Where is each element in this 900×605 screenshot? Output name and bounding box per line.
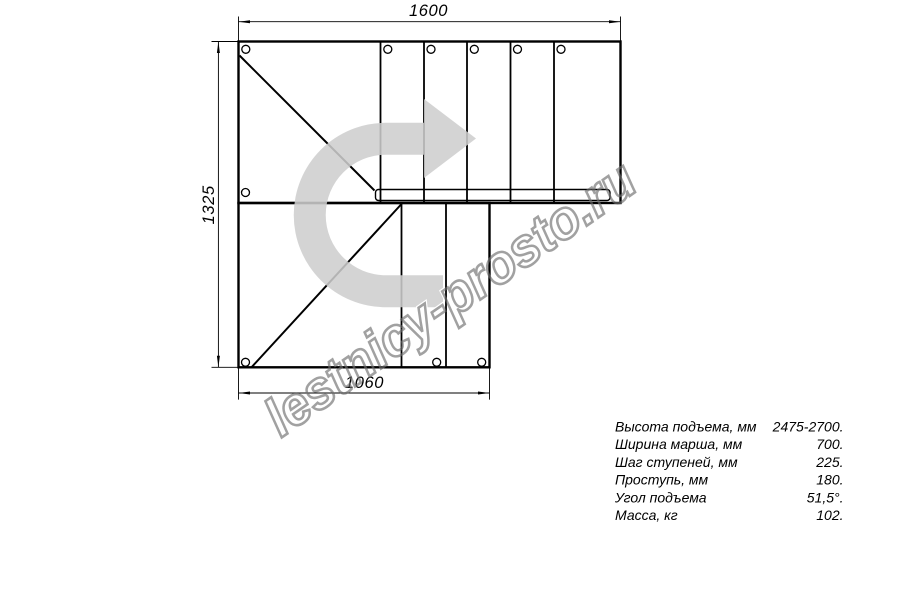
svg-text:225.: 225. — [815, 454, 843, 470]
svg-text:180.: 180. — [816, 472, 843, 488]
svg-text:2475-2700.: 2475-2700. — [772, 419, 844, 435]
svg-text:Ширина марша, мм: Ширина марша, мм — [615, 436, 743, 452]
svg-text:1325: 1325 — [200, 185, 218, 224]
svg-text:Масса, кг: Масса, кг — [615, 507, 678, 523]
svg-text:102.: 102. — [816, 507, 843, 523]
svg-text:Угол подъема: Угол подъема — [614, 489, 707, 505]
svg-text:51,5°.: 51,5°. — [807, 489, 844, 505]
svg-text:Шаг ступеней, мм: Шаг ступеней, мм — [615, 454, 738, 470]
svg-text:Высота подъема, мм: Высота подъема, мм — [615, 419, 757, 435]
svg-text:700.: 700. — [816, 436, 843, 452]
svg-text:1600: 1600 — [409, 2, 448, 20]
svg-text:Проступь, мм: Проступь, мм — [615, 472, 709, 488]
